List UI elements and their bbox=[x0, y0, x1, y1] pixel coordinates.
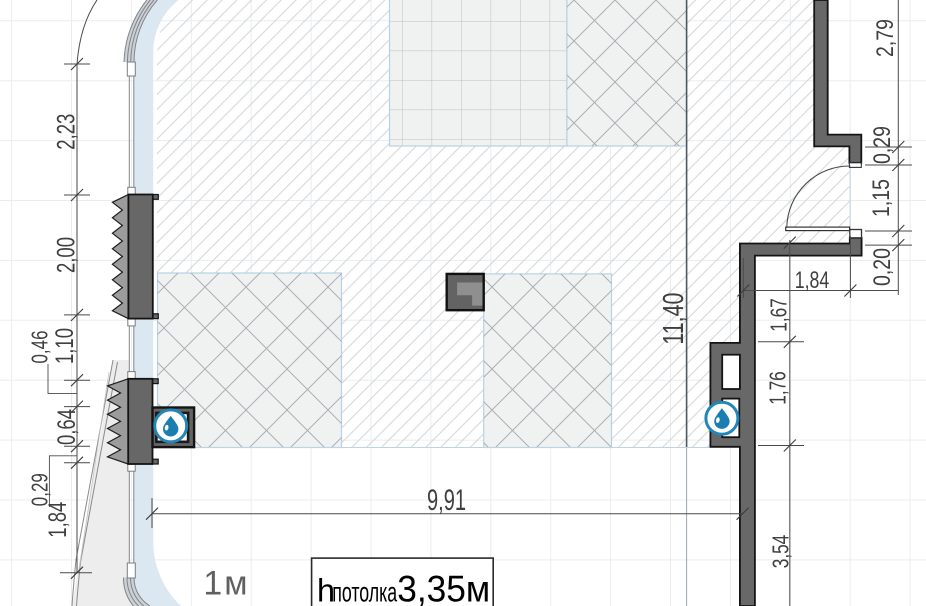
svg-text:1,10: 1,10 bbox=[51, 328, 79, 364]
svg-text:2,79: 2,79 bbox=[872, 19, 899, 57]
svg-text:1,76: 1,76 bbox=[765, 371, 791, 405]
svg-text:потолка: потолка bbox=[332, 577, 397, 606]
svg-text:0,29: 0,29 bbox=[869, 126, 896, 164]
svg-text:1,84: 1,84 bbox=[44, 502, 72, 538]
svg-text:0,64: 0,64 bbox=[53, 409, 81, 445]
svg-text:1,67: 1,67 bbox=[766, 298, 792, 332]
svg-text:11,40: 11,40 bbox=[658, 293, 690, 345]
svg-text:2,00: 2,00 bbox=[53, 237, 81, 273]
svg-text:1,84: 1,84 bbox=[795, 268, 830, 294]
svg-text:0,29: 0,29 bbox=[27, 473, 53, 506]
svg-text:0,46: 0,46 bbox=[27, 331, 53, 364]
svg-text:1,15: 1,15 bbox=[868, 179, 895, 217]
svg-text:3,35м: 3,35м bbox=[397, 568, 490, 606]
svg-text:1м: 1м bbox=[203, 565, 247, 603]
svg-text:2,23: 2,23 bbox=[53, 114, 81, 150]
svg-text:9,91: 9,91 bbox=[427, 484, 466, 517]
svg-text:3,54: 3,54 bbox=[768, 535, 794, 569]
svg-text:0,20: 0,20 bbox=[869, 248, 896, 286]
